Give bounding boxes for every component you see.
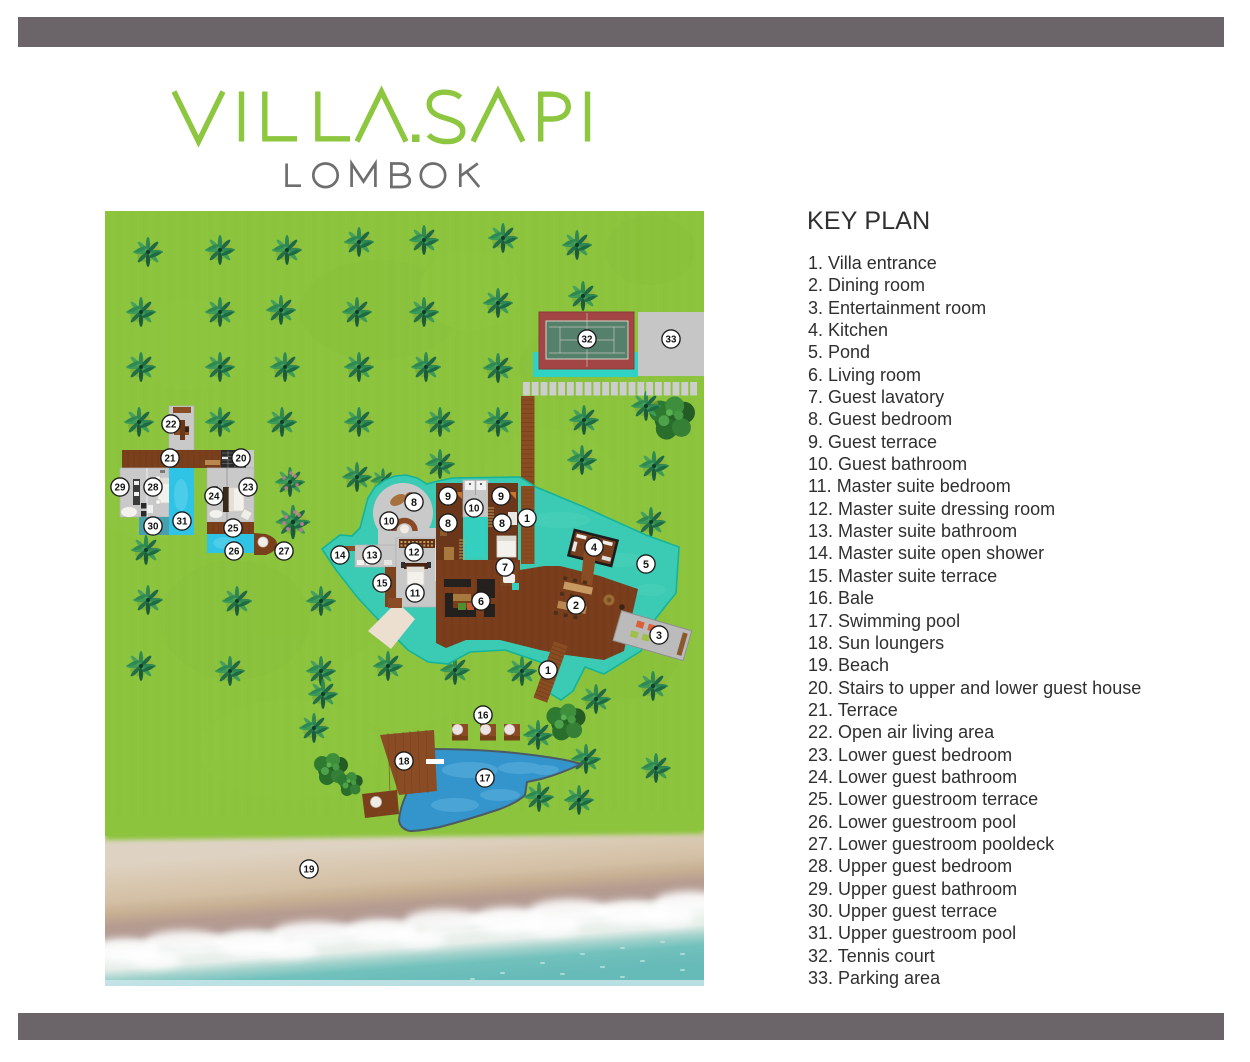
svg-text:22: 22 <box>166 420 177 431</box>
svg-text:23: 23 <box>243 483 254 494</box>
svg-text:27: 27 <box>279 547 290 558</box>
svg-text:31: 31 <box>177 517 188 528</box>
svg-text:32: 32 <box>582 335 593 346</box>
svg-text:9: 9 <box>445 491 451 503</box>
svg-text:18: 18 <box>399 757 410 768</box>
svg-text:7: 7 <box>502 562 508 574</box>
svg-text:10: 10 <box>469 504 480 515</box>
svg-text:19: 19 <box>304 865 315 876</box>
svg-text:13: 13 <box>367 551 378 562</box>
svg-text:12: 12 <box>409 548 420 559</box>
svg-text:1: 1 <box>524 513 530 525</box>
svg-text:20: 20 <box>236 454 247 465</box>
svg-text:8: 8 <box>445 518 451 530</box>
svg-text:26: 26 <box>229 547 240 558</box>
svg-text:28: 28 <box>148 483 159 494</box>
svg-text:1: 1 <box>545 665 551 677</box>
svg-text:33: 33 <box>666 335 677 346</box>
svg-text:30: 30 <box>148 522 159 533</box>
svg-text:5: 5 <box>643 559 649 571</box>
svg-text:2: 2 <box>573 600 579 612</box>
svg-text:6: 6 <box>478 596 484 608</box>
svg-text:24: 24 <box>209 492 220 503</box>
svg-text:8: 8 <box>499 518 505 530</box>
svg-text:4: 4 <box>591 542 597 554</box>
svg-text:15: 15 <box>377 579 388 590</box>
svg-text:21: 21 <box>165 454 176 465</box>
svg-text:3: 3 <box>656 630 662 642</box>
svg-text:9: 9 <box>498 491 504 503</box>
svg-text:25: 25 <box>228 524 239 535</box>
svg-text:17: 17 <box>480 774 491 785</box>
svg-text:8: 8 <box>411 497 417 509</box>
svg-text:11: 11 <box>410 589 421 600</box>
svg-text:29: 29 <box>115 483 126 494</box>
svg-text:14: 14 <box>335 551 346 562</box>
svg-text:16: 16 <box>478 711 489 722</box>
svg-text:10: 10 <box>384 517 395 528</box>
